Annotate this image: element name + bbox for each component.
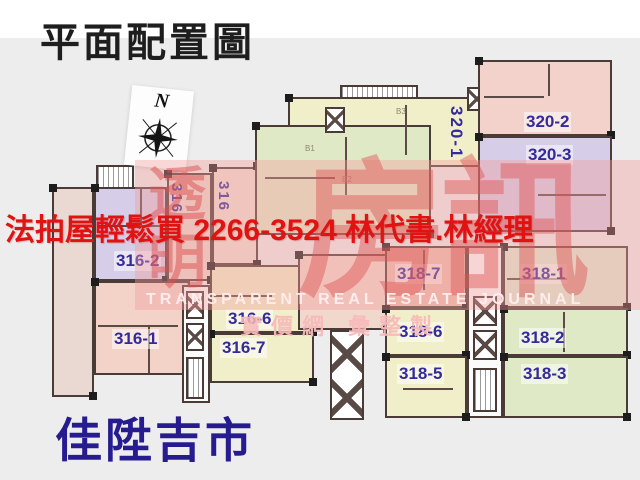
unit-318-5: 318-5 bbox=[385, 356, 467, 418]
watermark-english-line: TRANSPARENT REAL ESTATE JOURNAL bbox=[146, 291, 584, 309]
elevator-shaft-icon bbox=[186, 323, 204, 351]
compass: N bbox=[124, 85, 194, 171]
wall-line bbox=[98, 325, 178, 327]
watermark-chinese-line: 實價網 彙整製 bbox=[240, 309, 441, 341]
stair-hatch bbox=[186, 357, 204, 399]
project-name: 佳陞吉市 bbox=[55, 402, 255, 471]
unit-label: 318-5 bbox=[397, 364, 444, 384]
elevator-shaft-icon bbox=[330, 330, 364, 420]
wall-line bbox=[403, 388, 453, 390]
page-title: 平面配置圖 bbox=[40, 10, 255, 68]
unit-label: 318-2 bbox=[519, 328, 566, 348]
wall-line bbox=[548, 64, 550, 96]
unit-320-2: 320-2 bbox=[478, 60, 612, 136]
unit-label: 320-2 bbox=[524, 112, 571, 132]
ad-banner: 法拍屋輕鬆買 2266-3524 林代書.林經理 bbox=[5, 214, 533, 249]
stair-hatch bbox=[473, 368, 497, 412]
elevator-shaft-icon bbox=[325, 107, 345, 133]
unit-label: 318-3 bbox=[521, 364, 568, 384]
elevator-shaft-icon bbox=[473, 330, 497, 360]
unit-318-2: 318-2 bbox=[503, 308, 628, 356]
stairwell-316 bbox=[96, 165, 134, 189]
unit-label: 316-1 bbox=[112, 329, 159, 349]
floor-plan-page: 平面配置圖 N 316-2 316-1 316 316 316-6 bbox=[0, 0, 640, 480]
unit-318-3: 318-3 bbox=[503, 356, 628, 418]
room-label: B3 bbox=[396, 108, 406, 116]
wall-line bbox=[484, 96, 544, 98]
